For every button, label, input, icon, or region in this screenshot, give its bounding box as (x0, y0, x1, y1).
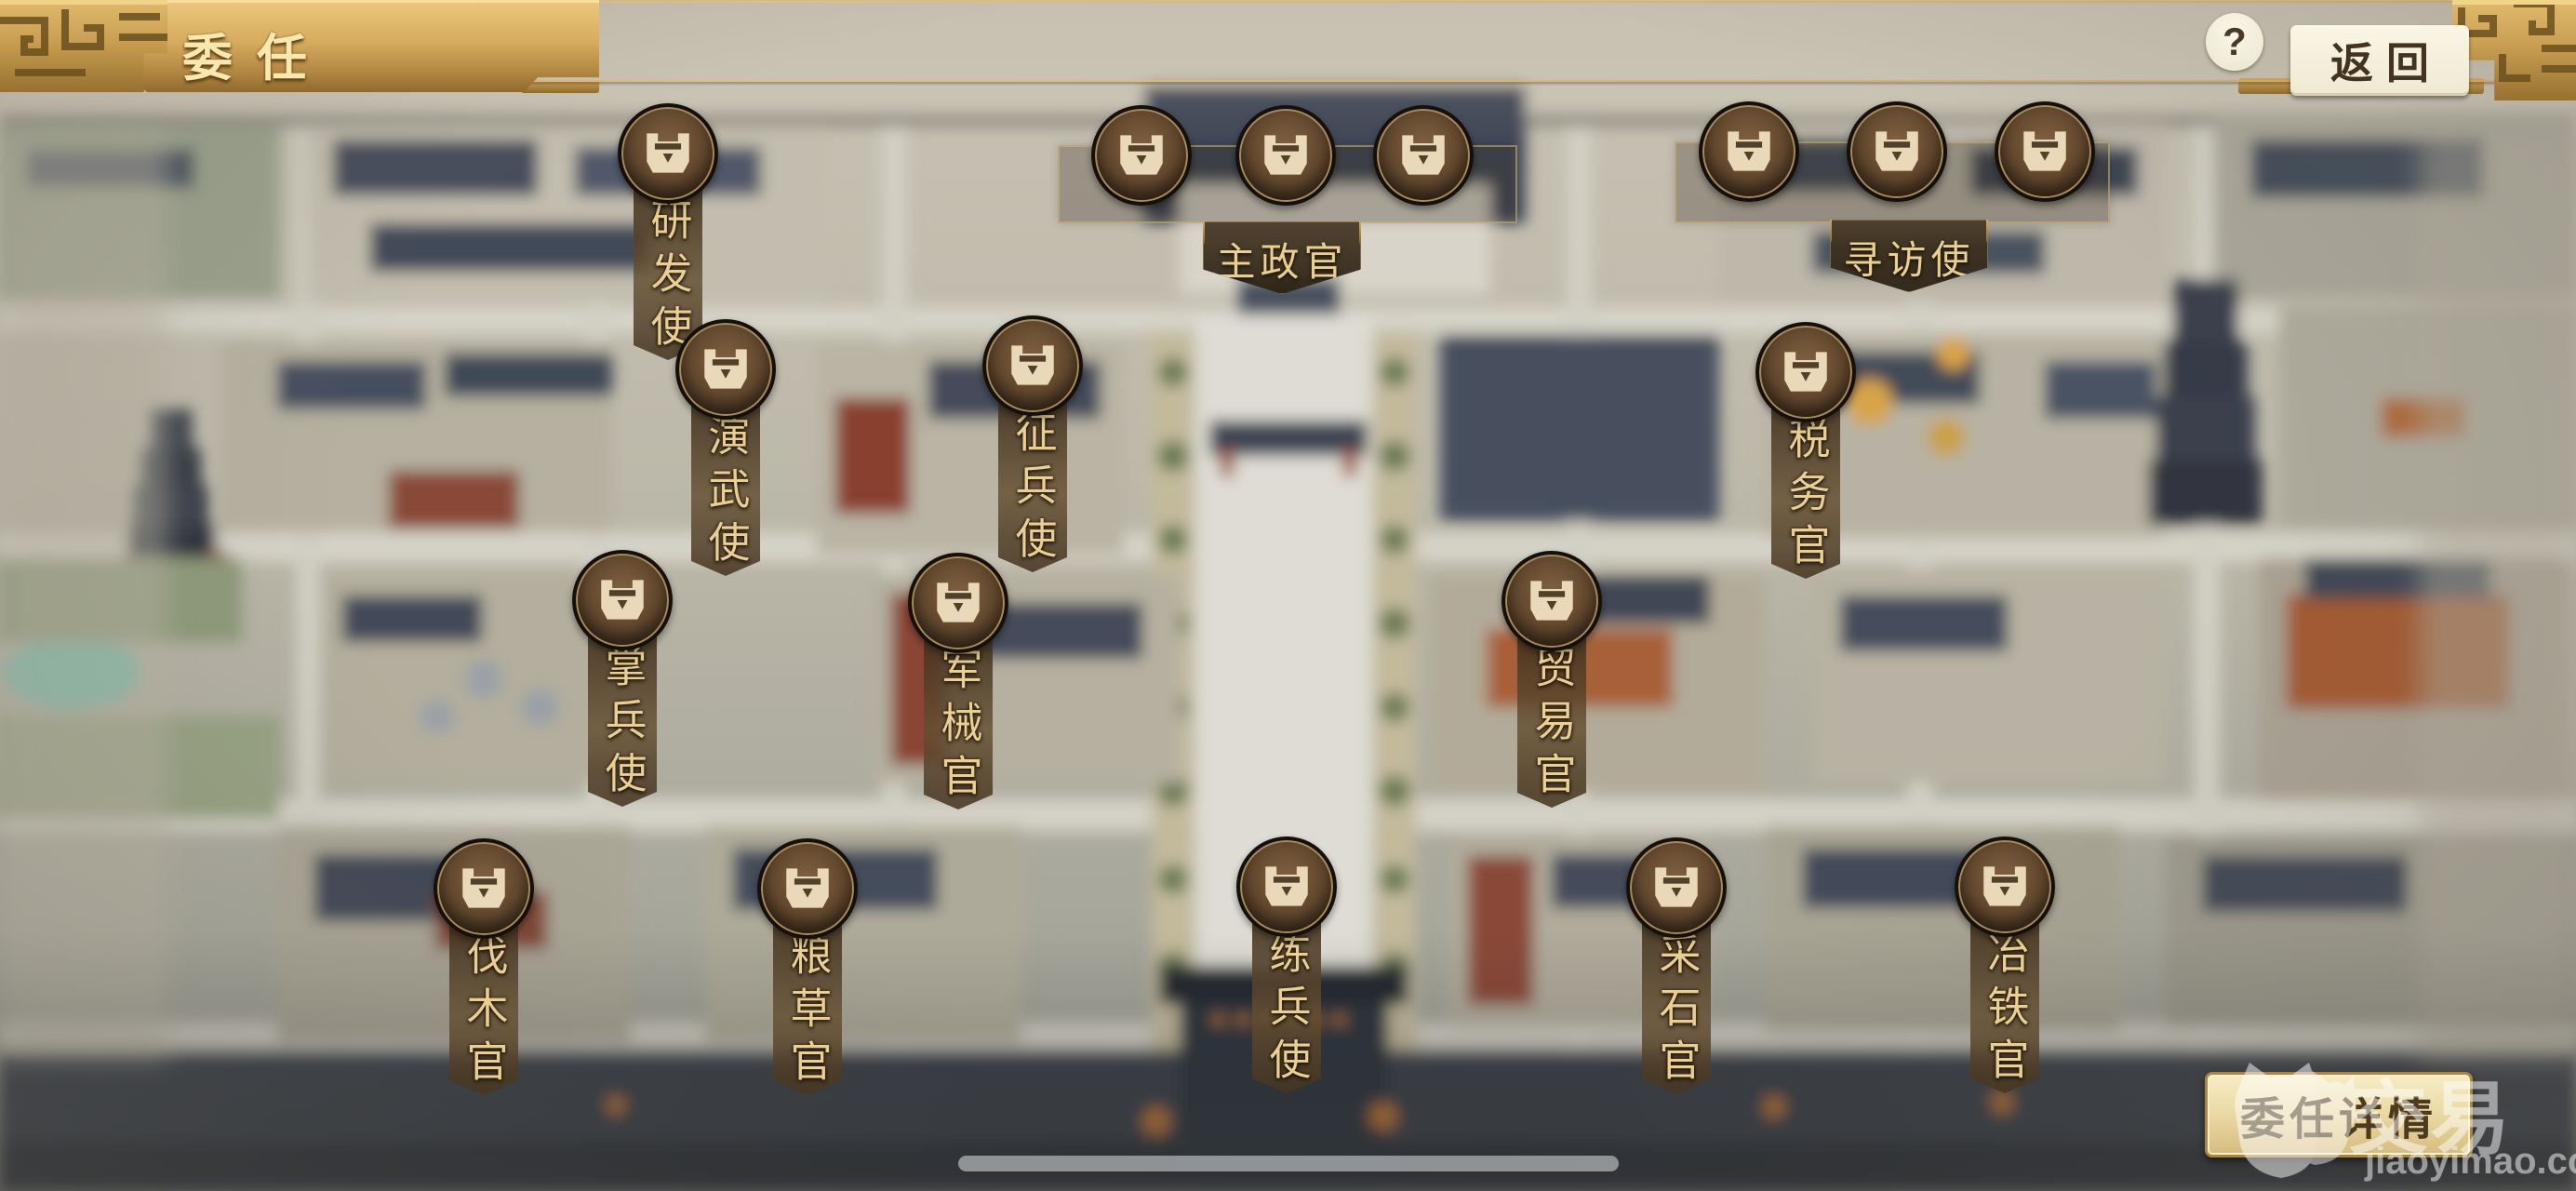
back-label: 返回 (2317, 30, 2442, 91)
seeker-slot-1[interactable] (1699, 101, 1799, 202)
official-ribbon: 粮草官 (773, 920, 842, 1095)
help-button[interactable]: ? (2206, 13, 2263, 71)
official-ribbon: 税务官 (1771, 404, 1840, 579)
commission-seal-icon (1399, 133, 1448, 178)
official-marker-lianbingshi[interactable]: 练兵使 (1236, 836, 1337, 937)
chief-slot-1[interactable] (1091, 105, 1192, 206)
official-label: 粮草官 (778, 933, 838, 1095)
official-marker-liangcaoguan[interactable]: 粮草官 (757, 838, 858, 939)
commission-badge[interactable] (1699, 101, 1799, 202)
commission-seal-icon (1725, 129, 1773, 174)
commission-seal-icon (701, 347, 750, 392)
chief-slot-3[interactable] (1373, 105, 1474, 206)
official-badge[interactable] (1626, 837, 1727, 938)
official-badge[interactable] (1755, 322, 1856, 422)
seeker-slot-2[interactable] (1847, 101, 1947, 202)
commission-screen: 委任 ? 返回 主 (0, 0, 2576, 1191)
official-marker-yanfashi[interactable]: 研发使 (618, 103, 718, 204)
official-marker-caishiguan[interactable]: 采石官 (1626, 837, 1727, 938)
official-badge[interactable] (757, 838, 858, 939)
official-marker-famuguan[interactable]: 伐木官 (434, 838, 534, 939)
official-label: 练兵使 (1257, 931, 1317, 1093)
chief-slot-2[interactable] (1235, 105, 1336, 206)
commission-seal-icon (1262, 864, 1311, 909)
commission-details-label: 委任详情 (2240, 1082, 2437, 1147)
page-title: 委任 (182, 17, 331, 90)
seeker-slot-3[interactable] (1995, 101, 2095, 202)
commission-badge[interactable] (1091, 105, 1192, 206)
commission-seal-icon (1008, 343, 1057, 388)
header-title-plaque: 委任 (128, 0, 599, 92)
official-label: 采石官 (1647, 932, 1707, 1094)
commission-seal-icon (1981, 864, 2029, 909)
official-label: 冶铁官 (1975, 931, 2035, 1093)
official-badge[interactable] (434, 838, 534, 939)
official-label: 演武使 (696, 414, 756, 576)
official-ribbon: 练兵使 (1252, 918, 1321, 1093)
commission-seal-icon (934, 581, 982, 625)
official-marker-maoyiguan[interactable]: 贸易官 (1502, 551, 1602, 651)
home-indicator[interactable] (958, 1156, 1619, 1171)
commission-seal-icon (1873, 129, 1921, 174)
official-marker-zhengbingshi[interactable]: 征兵使 (982, 315, 1083, 416)
commission-badge[interactable] (1847, 101, 1947, 202)
commission-seal-icon (1652, 865, 1701, 910)
back-button[interactable]: 返回 (2290, 25, 2469, 96)
official-marker-yanwushi[interactable]: 演武使 (675, 319, 776, 420)
official-ribbon: 演武使 (691, 401, 760, 576)
official-ribbon: 军械官 (924, 635, 993, 810)
official-ribbon: 冶铁官 (1970, 918, 2039, 1093)
official-label: 伐木官 (454, 933, 514, 1095)
commission-badge[interactable] (1373, 105, 1474, 206)
official-badge[interactable] (908, 553, 1008, 653)
help-label: ? (2222, 20, 2247, 64)
commission-seal-icon (1261, 133, 1310, 178)
official-badge[interactable] (1502, 551, 1602, 651)
official-badge[interactable] (618, 103, 718, 204)
commission-seal-icon (460, 866, 508, 911)
official-marker-zhangbingshi[interactable]: 掌兵使 (572, 550, 673, 650)
commission-badge[interactable] (1235, 105, 1336, 206)
official-ribbon: 采石官 (1642, 919, 1711, 1094)
header-ornament-left (0, 0, 167, 92)
commission-seal-icon (783, 866, 832, 911)
official-ribbon: 贸易官 (1517, 633, 1586, 808)
official-badge[interactable] (1955, 836, 2055, 937)
official-badge[interactable] (675, 319, 776, 420)
official-label: 贸易官 (1522, 646, 1582, 808)
official-badge[interactable] (1236, 836, 1337, 937)
official-badge[interactable] (572, 550, 673, 650)
official-label: 掌兵使 (593, 645, 653, 807)
official-label: 军械官 (928, 648, 989, 810)
official-badge[interactable] (982, 315, 1083, 416)
official-ribbon: 伐木官 (449, 920, 518, 1095)
commission-badge[interactable] (1995, 101, 2095, 202)
commission-seal-icon (2021, 129, 2069, 174)
meander-pattern-icon (0, 0, 167, 92)
official-ribbon: 征兵使 (998, 397, 1067, 572)
commission-details-button[interactable]: 委任详情 (2205, 1072, 2473, 1158)
official-marker-shuiwuguan[interactable]: 税务官 (1755, 322, 1856, 422)
official-ribbon: 掌兵使 (588, 632, 657, 807)
official-marker-junxieguan[interactable]: 军械官 (908, 553, 1008, 653)
official-label: 征兵使 (1003, 410, 1063, 572)
commission-seal-icon (644, 131, 692, 176)
commission-seal-icon (1528, 579, 1576, 623)
commission-seal-icon (1117, 133, 1166, 178)
commission-seal-icon (1782, 350, 1830, 395)
official-marker-yetieguan[interactable]: 冶铁官 (1955, 836, 2055, 937)
commission-seal-icon (598, 578, 647, 622)
official-label: 税务官 (1776, 417, 1836, 579)
